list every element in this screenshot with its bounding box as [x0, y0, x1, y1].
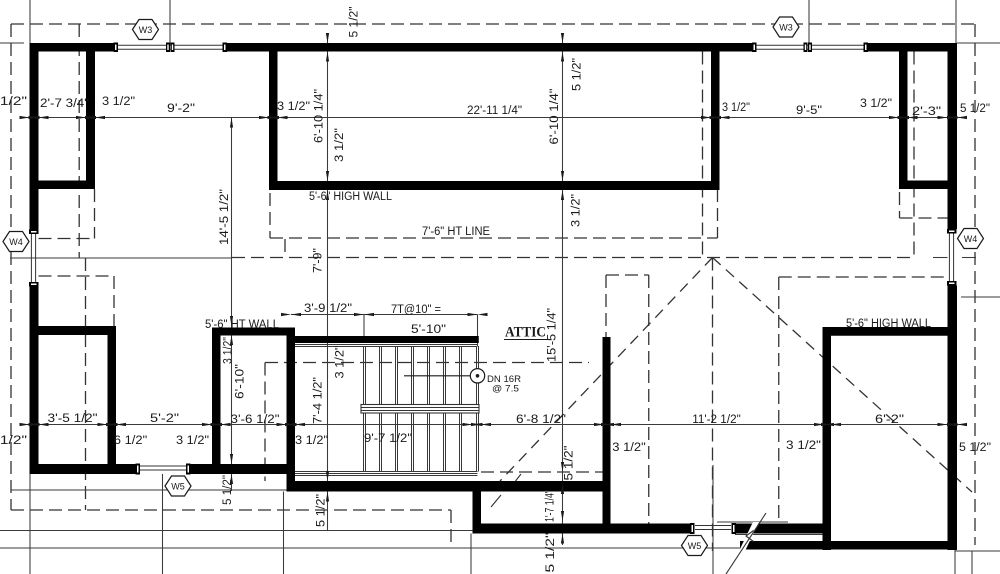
- svg-text:14'-5 1/2": 14'-5 1/2": [219, 189, 231, 245]
- svg-text:7'-6" HT LINE: 7'-6" HT LINE: [422, 226, 490, 238]
- svg-text:5 1/2": 5 1/2": [349, 7, 361, 38]
- svg-text:6'-10 1/4": 6'-10 1/4": [549, 89, 561, 145]
- svg-text:9'-2": 9'-2": [167, 103, 195, 115]
- svg-text:5 1/2": 5 1/2": [572, 58, 584, 91]
- svg-text:5 1/2": 5 1/2": [960, 103, 990, 115]
- svg-text:3 1/2": 3 1/2": [102, 96, 135, 108]
- svg-text:3 1/2": 3 1/2": [571, 194, 583, 227]
- svg-text:5 1/2": 5 1/2": [959, 442, 991, 454]
- svg-text:7T@10" =: 7T@10" =: [391, 304, 441, 316]
- svg-text:3'-6 1/2": 3'-6 1/2": [231, 414, 280, 426]
- svg-text:W4: W4: [9, 237, 23, 247]
- svg-text:3 1/2": 3 1/2": [223, 337, 235, 364]
- svg-text:W5: W5: [688, 541, 702, 551]
- svg-text:5 1/2": 5 1/2": [0, 96, 27, 108]
- svg-text:3 1/2": 3 1/2": [335, 346, 347, 379]
- svg-text:3'-9 1/2": 3'-9 1/2": [304, 303, 352, 315]
- svg-text:5 1/2": 5 1/2": [316, 494, 328, 527]
- svg-text:6'-8 1/2": 6'-8 1/2": [516, 414, 566, 426]
- svg-text:5 1/2": 5 1/2": [0, 435, 27, 447]
- svg-text:3 1/2": 3 1/2": [176, 435, 209, 447]
- svg-text:3 1/2": 3 1/2": [334, 128, 346, 162]
- svg-text:W3: W3: [139, 25, 153, 35]
- svg-text:15'-5 1/4": 15'-5 1/4": [547, 308, 559, 362]
- svg-text:W5: W5: [171, 482, 185, 492]
- svg-text:W3: W3: [779, 23, 793, 33]
- svg-text:11'-2 1/2": 11'-2 1/2": [692, 414, 741, 426]
- svg-text:7'-9": 7'-9": [313, 248, 325, 273]
- svg-text:5'-6" HIGH WALL: 5'-6" HIGH WALL: [309, 191, 393, 203]
- svg-text:5 1/2": 5 1/2": [222, 475, 234, 505]
- svg-text:6'-10 1/4": 6'-10 1/4": [314, 89, 326, 143]
- svg-text:6'-10": 6'-10": [235, 364, 247, 399]
- svg-text:22'-11 1/4": 22'-11 1/4": [467, 105, 522, 117]
- svg-text:6'-2": 6'-2": [875, 414, 904, 426]
- svg-text:5'-2": 5'-2": [150, 413, 179, 425]
- svg-text:3 1/2": 3 1/2": [786, 440, 821, 452]
- svg-text:5'-6" HT WALL: 5'-6" HT WALL: [205, 319, 280, 331]
- svg-text:7'-4 1/2": 7'-4 1/2": [313, 377, 325, 424]
- svg-text:W4: W4: [964, 234, 978, 244]
- svg-text:5 1/2": 5 1/2": [564, 446, 576, 481]
- svg-text:2'-3": 2'-3": [912, 106, 941, 118]
- svg-text:3 1/2": 3 1/2": [860, 98, 892, 110]
- svg-text:5'-6" HIGH WALL: 5'-6" HIGH WALL: [846, 318, 932, 330]
- svg-text:3 1/2": 3 1/2": [277, 101, 310, 113]
- svg-text:3 1/2": 3 1/2": [612, 442, 646, 454]
- svg-text:9'-5": 9'-5": [796, 105, 822, 117]
- svg-text:ATTIC: ATTIC: [505, 325, 546, 341]
- svg-text:3 1/2": 3 1/2": [722, 102, 750, 114]
- svg-text:3'-5 1/2": 3'-5 1/2": [48, 413, 98, 425]
- svg-text:6 1/2": 6 1/2": [114, 435, 148, 447]
- svg-text:1'-7 1/4": 1'-7 1/4": [545, 490, 557, 522]
- svg-text:3 1/2": 3 1/2": [295, 435, 328, 447]
- svg-text:2'-7 3/4": 2'-7 3/4": [40, 98, 89, 110]
- svg-text:9'-7 1/2": 9'-7 1/2": [364, 433, 412, 445]
- svg-text:@ 7.5: @ 7.5: [492, 384, 519, 395]
- svg-text:5'-10": 5'-10": [411, 324, 446, 336]
- svg-text:5 1/2": 5 1/2": [545, 533, 557, 573]
